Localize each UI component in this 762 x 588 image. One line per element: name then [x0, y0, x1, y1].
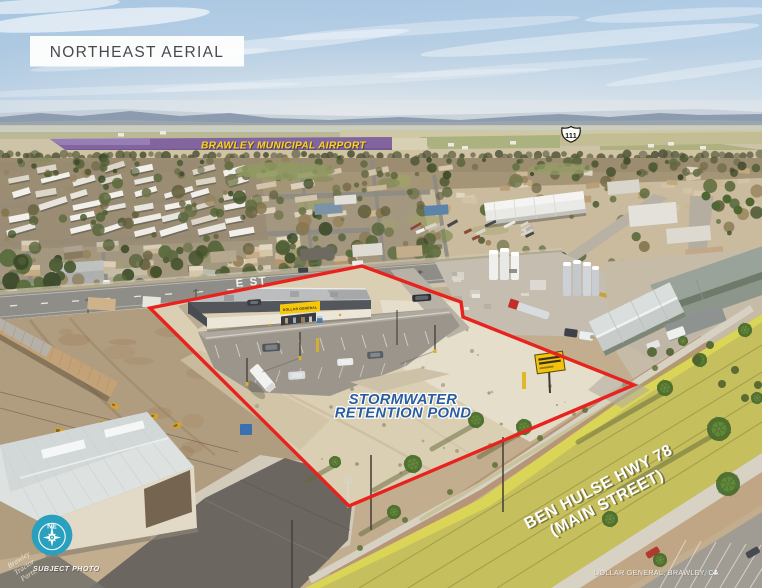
svg-text:/: / — [705, 568, 707, 577]
svg-text:RETENTION POND: RETENTION POND — [335, 406, 472, 422]
svg-text:111: 111 — [565, 131, 577, 140]
svg-text:BRAWLEY MUNICIPAL AIRPORT: BRAWLEY MUNICIPAL AIRPORT — [201, 141, 366, 152]
svg-text:NE: NE — [47, 524, 57, 531]
svg-text:DOLLAR GENERAL, BRAWLEY, CA: DOLLAR GENERAL, BRAWLEY, CA — [594, 568, 719, 577]
svg-text:4: 4 — [713, 568, 717, 577]
svg-text:NORTHEAST AERIAL: NORTHEAST AERIAL — [50, 44, 224, 61]
svg-text:SUBJECT PHOTO: SUBJECT PHOTO — [33, 565, 100, 573]
